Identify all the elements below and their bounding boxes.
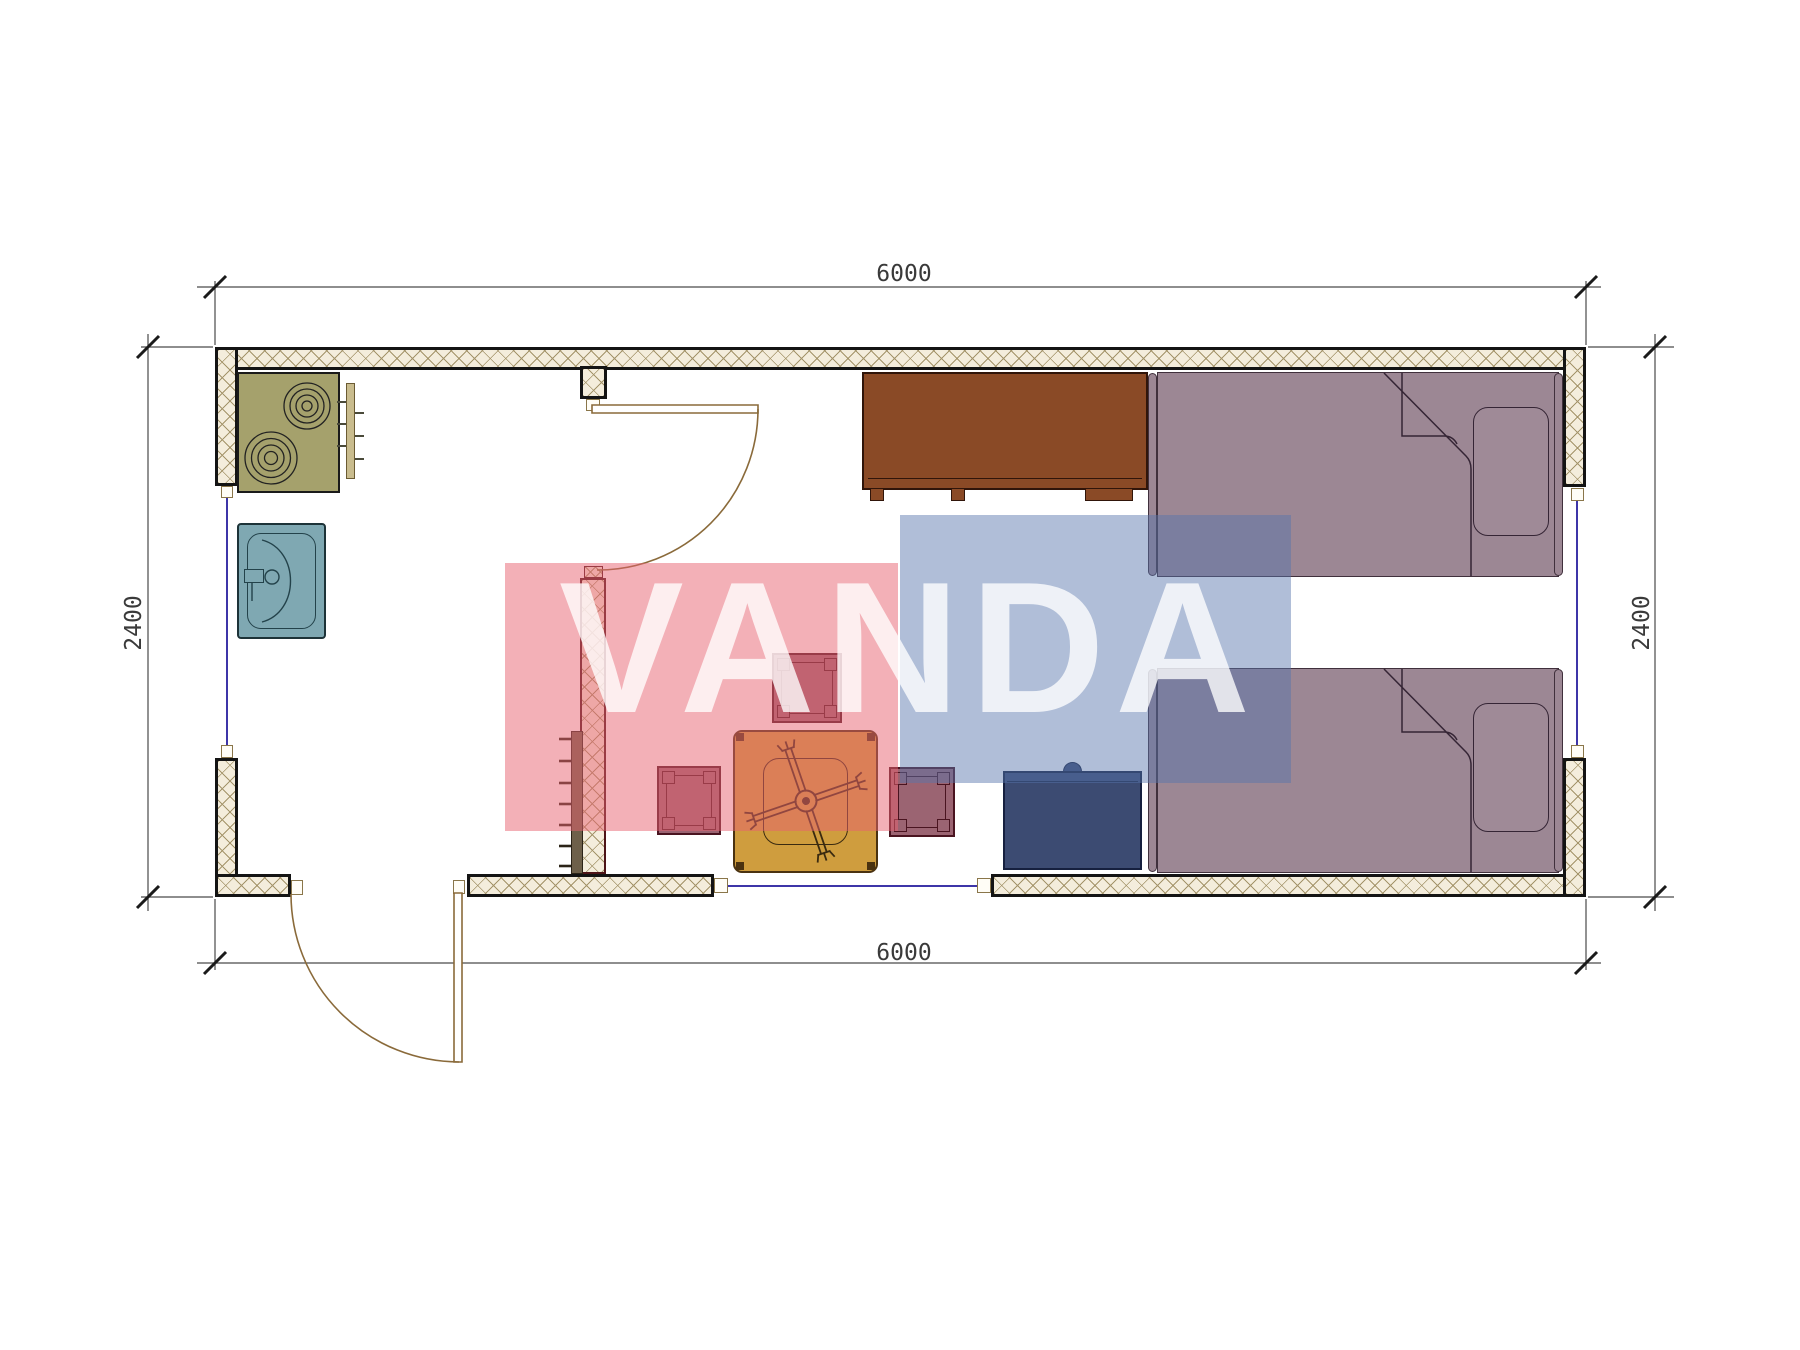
watermark-text: VANDA (559, 554, 1260, 741)
dimension-label-top: 6000 (876, 261, 931, 287)
burner-icon (245, 383, 330, 484)
dimension-label-bottom: 6000 (876, 940, 931, 966)
dimension-label-right: 2400 (1629, 595, 1655, 650)
sink-detail (252, 540, 291, 622)
dimension-label-left: 2400 (121, 595, 147, 650)
dish-rack-ticks (337, 402, 364, 459)
bed-fold-lines (1384, 373, 1471, 872)
floor-plan: VANDA 6000 6000 2400 2400 (0, 0, 1800, 1350)
